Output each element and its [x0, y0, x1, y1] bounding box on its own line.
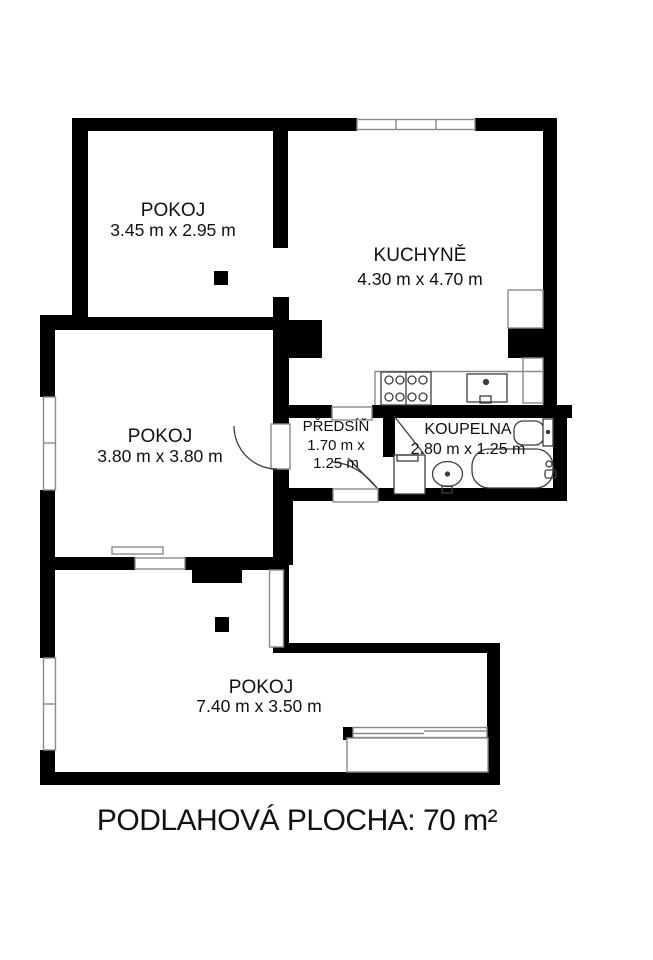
niche — [508, 290, 543, 328]
wall-segment — [40, 772, 500, 785]
window-top — [357, 120, 475, 130]
room-dims-predsin-2: 1.25 m — [313, 455, 359, 472]
window-left-lower — [44, 658, 56, 750]
room-label-pokoj-mid: POKOJ — [128, 426, 192, 447]
stove — [381, 372, 431, 405]
floor-plan-page: POKOJ 3.45 m x 2.95 m KUCHYNĚ 4.30 m x 4… — [0, 0, 653, 960]
room-dims-predsin-1: 1.70 m x — [307, 437, 365, 454]
wall-segment — [288, 405, 332, 418]
floor-plan: POKOJ 3.45 m x 2.95 m KUCHYNĚ 4.30 m x 4… — [0, 0, 653, 960]
room-label-pokoj-bottom: POKOJ — [229, 677, 293, 698]
kitchen-sink — [467, 374, 507, 403]
loggia — [347, 738, 488, 772]
room-dims-koupelna: 2.80 m x 1.25 m — [411, 441, 526, 458]
wall-segment — [273, 118, 288, 248]
window-left-upper — [44, 397, 56, 490]
duct-block — [508, 328, 545, 358]
wall-segment — [487, 645, 500, 785]
wall-segment — [72, 118, 357, 131]
chimney-flue — [215, 617, 229, 632]
wall-segment — [288, 320, 322, 358]
wardrobe-shaft — [270, 570, 284, 647]
room-label-kuchyne: KUCHYNĚ — [374, 244, 467, 266]
wall-segment — [40, 490, 55, 658]
wall-segment — [185, 557, 274, 570]
wall-segment — [543, 118, 557, 415]
room-dims-kuchyne: 4.30 m x 4.70 m — [357, 269, 482, 289]
radiator — [112, 547, 163, 554]
wall-segment — [72, 118, 88, 330]
loggia-window — [353, 728, 487, 738]
room-label-pokoj-top: POKOJ — [141, 200, 205, 221]
wall-segment — [285, 643, 500, 653]
wall-segment — [40, 315, 55, 397]
wall-segment — [192, 570, 242, 583]
room-dims-pokoj-mid: 3.80 m x 3.80 m — [97, 446, 222, 466]
room-dims-pokoj-top: 3.45 m x 2.95 m — [110, 220, 235, 240]
chimney-flue — [214, 271, 228, 285]
washing-machine — [394, 455, 425, 494]
wall-segment — [383, 415, 395, 457]
wall-segment — [372, 405, 572, 418]
room-dims-pokoj-bottom: 7.40 m x 3.50 m — [196, 696, 321, 716]
wall-segment — [273, 297, 289, 424]
wall-segment — [40, 557, 135, 570]
cupboard — [523, 358, 543, 403]
room-label-predsin: PŘEDSÍŇ — [303, 418, 370, 435]
door-opening-room — [271, 424, 290, 469]
wall-segment — [553, 405, 567, 500]
floor-area-title: PODLAHOVÁ PLOCHA: 70 m² — [97, 804, 498, 837]
wall-segment — [55, 317, 274, 330]
door-threshold-room — [135, 558, 185, 569]
room-label-koupelna: KOUPELNA — [424, 421, 511, 438]
wall-segment — [274, 488, 293, 565]
door-threshold-entry — [333, 489, 378, 502]
